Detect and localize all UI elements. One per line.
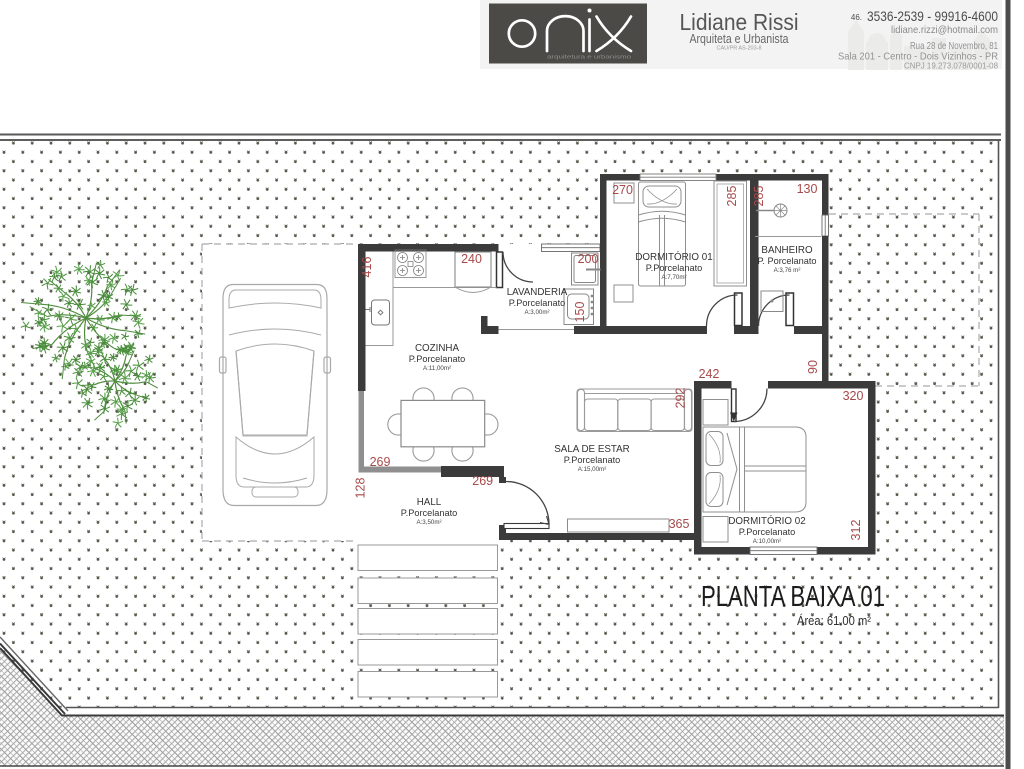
svg-text:365: 365 — [669, 517, 690, 531]
svg-text:arquitetura e urbanismo: arquitetura e urbanismo — [547, 55, 631, 61]
svg-text:P.Porcelanato: P.Porcelanato — [509, 298, 566, 308]
svg-text:LAVANDERIA: LAVANDERIA — [507, 287, 568, 298]
svg-text:A:10,00m²: A:10,00m² — [753, 538, 782, 545]
svg-text:P.Porcelanato: P.Porcelanato — [564, 455, 621, 465]
svg-text:A:15,00m²: A:15,00m² — [578, 466, 607, 473]
svg-text:P.Porcelanato: P.Porcelanato — [646, 263, 703, 273]
svg-text:CAU/PR AS-203-8: CAU/PR AS-203-8 — [717, 46, 762, 52]
svg-text:lidiane.rizzi@hotmail.com: lidiane.rizzi@hotmail.com — [891, 24, 998, 36]
svg-text:242: 242 — [699, 367, 720, 381]
svg-text:292: 292 — [674, 388, 688, 409]
svg-text:312: 312 — [849, 520, 863, 541]
svg-text:285: 285 — [725, 186, 739, 207]
svg-text:3536-2539 - 99916-4600: 3536-2539 - 99916-4600 — [867, 8, 998, 24]
svg-text:269: 269 — [370, 455, 391, 469]
svg-text:130: 130 — [797, 182, 818, 196]
svg-text:150: 150 — [573, 302, 587, 323]
svg-text:269: 269 — [472, 474, 493, 488]
svg-text:270: 270 — [612, 183, 633, 197]
svg-text:CNPJ 19.273.078/0001-08: CNPJ 19.273.078/0001-08 — [904, 61, 998, 71]
svg-text:P. Porcelanato: P. Porcelanato — [757, 256, 816, 266]
svg-text:200: 200 — [578, 252, 599, 266]
svg-text:A:3,00m²: A:3,00m² — [524, 309, 549, 316]
svg-text:240: 240 — [461, 252, 482, 266]
svg-text:BANHEIRO: BANHEIRO — [761, 245, 813, 256]
svg-text:P.Porcelanato: P.Porcelanato — [409, 354, 466, 364]
svg-text:Arquiteta e Urbanista: Arquiteta e Urbanista — [690, 32, 789, 46]
svg-text:HALL: HALL — [417, 497, 442, 508]
svg-text:P.Porcelanato: P.Porcelanato — [739, 527, 796, 537]
svg-text:COZINHA: COZINHA — [415, 343, 460, 354]
svg-text:DORMITÓRIO 01: DORMITÓRIO 01 — [635, 252, 712, 263]
svg-text:416: 416 — [360, 257, 374, 278]
svg-text:DORMITÓRIO 02: DORMITÓRIO 02 — [728, 516, 805, 527]
svg-text:128: 128 — [354, 478, 368, 499]
svg-text:A:7,70m²: A:7,70m² — [661, 274, 686, 281]
svg-text:PLANTA BAIXA 01: PLANTA BAIXA 01 — [701, 581, 885, 613]
svg-text:320: 320 — [843, 389, 864, 403]
svg-text:A:3,50m²: A:3,50m² — [416, 519, 441, 526]
svg-text:A:3,76 m²: A:3,76 m² — [774, 267, 801, 274]
svg-text:46.: 46. — [851, 13, 862, 22]
svg-text:Área: 61.00 m²: Área: 61.00 m² — [797, 613, 872, 628]
svg-text:P.Porcelanato: P.Porcelanato — [401, 508, 458, 518]
svg-text:285: 285 — [752, 186, 766, 207]
svg-text:A:11,00m²: A:11,00m² — [423, 365, 451, 372]
svg-text:SALA DE ESTAR: SALA DE ESTAR — [554, 444, 630, 455]
svg-text:90: 90 — [806, 360, 820, 374]
